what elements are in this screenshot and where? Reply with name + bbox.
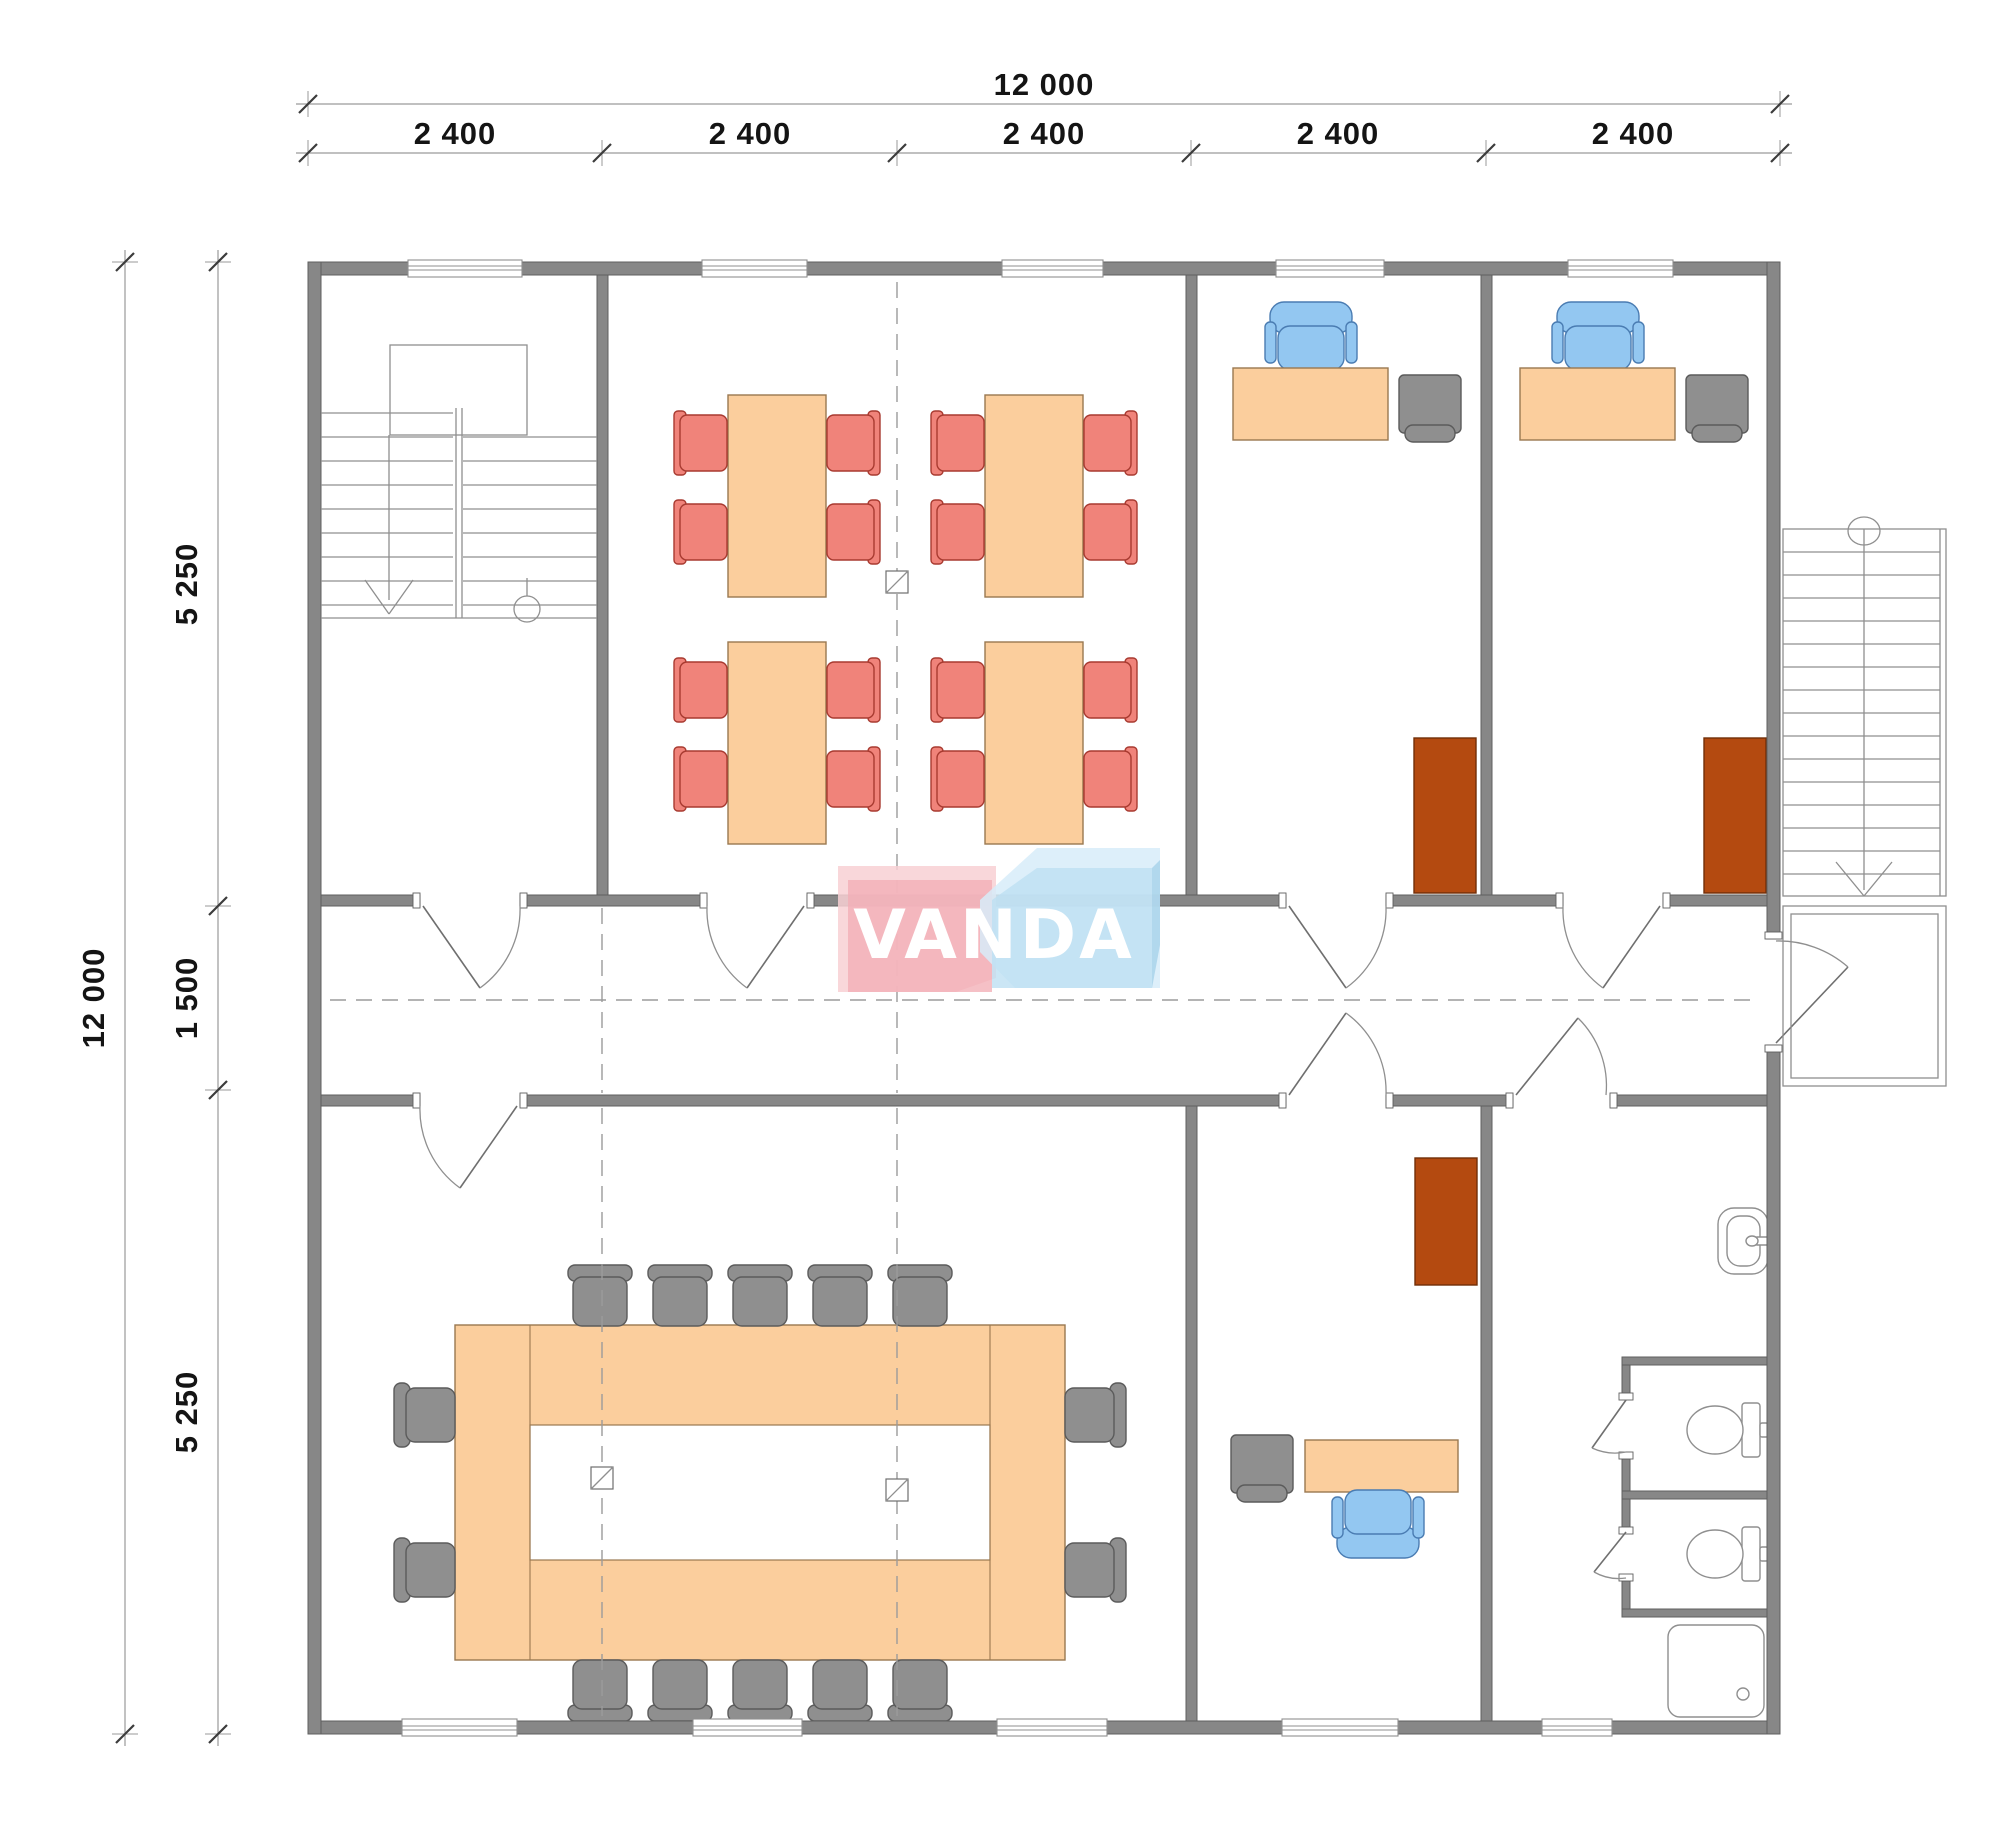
door-wc-stall-2 xyxy=(1594,1532,1626,1579)
cabinet xyxy=(1415,1158,1477,1285)
gray-chair-icon xyxy=(394,1383,455,1447)
conference-table-opening xyxy=(530,1425,990,1560)
desk xyxy=(1233,368,1388,440)
window-icon xyxy=(1276,260,1384,277)
toilet-icon xyxy=(1687,1403,1768,1457)
red-chair-icon xyxy=(674,747,727,811)
dimension-row: 5 250 xyxy=(169,543,204,626)
logo-text: VANDA xyxy=(853,896,1135,975)
wardrobe xyxy=(1414,738,1476,893)
toilet-icon xyxy=(1687,1527,1768,1581)
dimension-row: 5 250 xyxy=(169,1371,204,1454)
door-bathroom xyxy=(1516,1018,1606,1095)
bathroom-fixtures xyxy=(1668,1208,1772,1717)
entrance-porch xyxy=(1783,906,1946,1086)
gray-armchair-icon xyxy=(1686,375,1748,442)
gray-chair-icon xyxy=(648,1265,712,1326)
staircase-internal xyxy=(321,345,597,622)
door-exterior xyxy=(1776,941,1848,1043)
classroom-table xyxy=(728,642,826,844)
vanda-watermark: VANDA xyxy=(838,848,1160,992)
door-office-bottom xyxy=(1289,1013,1386,1095)
dimension-bay: 2 400 xyxy=(1592,116,1675,151)
red-chair-icon xyxy=(931,500,984,564)
wall-meeting-office xyxy=(1186,1095,1197,1721)
gray-chair-icon xyxy=(648,1660,712,1721)
gray-chair-icon xyxy=(568,1660,632,1721)
red-chair-icon xyxy=(1084,500,1137,564)
classroom-furniture xyxy=(674,395,1137,844)
door-classroom xyxy=(707,906,804,988)
gray-chair-icon xyxy=(728,1265,792,1326)
red-chair-icon xyxy=(827,747,880,811)
office-a-furniture xyxy=(1233,302,1476,893)
stair-landing xyxy=(390,345,527,435)
classroom-table xyxy=(985,395,1083,597)
gray-chair-icon xyxy=(394,1538,455,1602)
red-chair-icon xyxy=(931,658,984,722)
dimension-row: 1 500 xyxy=(169,957,204,1040)
meeting-room-furniture xyxy=(394,1265,1126,1721)
dimension-total-width: 12 000 xyxy=(994,67,1095,102)
gray-chair-icon xyxy=(728,1660,792,1721)
gray-chair-icon xyxy=(808,1265,872,1326)
dimension-left: 12 000 5 250 1 500 5 250 xyxy=(76,250,231,1746)
desk xyxy=(1305,1440,1458,1492)
staircase-external xyxy=(1783,517,1946,1086)
column-icon xyxy=(886,1479,908,1501)
dimension-top: 12 000 2 400 2 400 2 400 2 400 2 400 xyxy=(296,67,1792,166)
red-chair-icon xyxy=(674,500,727,564)
wall-office-bathroom xyxy=(1481,1095,1492,1721)
blue-task-chair-icon xyxy=(1265,302,1357,370)
door-stairwell xyxy=(423,906,520,988)
window-icon xyxy=(702,260,807,277)
red-chair-icon xyxy=(827,658,880,722)
dimension-bay: 2 400 xyxy=(709,116,792,151)
red-chair-icon xyxy=(931,747,984,811)
red-chair-icon xyxy=(827,500,880,564)
desk xyxy=(1520,368,1675,440)
floor-plan-drawing: 12 000 2 400 2 400 2 400 2 400 2 400 12 … xyxy=(0,0,2000,1848)
exterior-wall-left xyxy=(308,262,321,1734)
office-bottom-furniture xyxy=(1231,1158,1477,1558)
window-icon xyxy=(402,1719,517,1736)
exterior-wall-right xyxy=(1767,1045,1780,1734)
window-icon xyxy=(693,1719,802,1736)
classroom-table xyxy=(728,395,826,597)
blue-task-chair-icon xyxy=(1552,302,1644,370)
gray-armchair-icon xyxy=(1231,1435,1293,1502)
window-icon xyxy=(1002,260,1103,277)
window-icon xyxy=(408,260,522,277)
red-chair-icon xyxy=(931,411,984,475)
window-icon xyxy=(1568,260,1673,277)
window-icon xyxy=(997,1719,1107,1736)
gray-chair-icon xyxy=(1065,1538,1126,1602)
wall-classroom-office xyxy=(1186,275,1197,901)
wall-stairwell-classroom xyxy=(597,275,608,901)
door-office-b xyxy=(1563,906,1660,988)
floor-plan-page: 12 000 2 400 2 400 2 400 2 400 2 400 12 … xyxy=(0,0,2000,1848)
office-b-furniture xyxy=(1520,302,1766,893)
red-chair-icon xyxy=(1084,411,1137,475)
door-wc-stall-1 xyxy=(1592,1400,1626,1453)
window-icon xyxy=(1542,1719,1612,1736)
window-icon xyxy=(1282,1719,1398,1736)
dimension-bay: 2 400 xyxy=(1003,116,1086,151)
wardrobe xyxy=(1704,738,1766,893)
dimension-total-height: 12 000 xyxy=(76,948,111,1049)
shower-tray-icon xyxy=(1668,1625,1764,1717)
gray-chair-icon xyxy=(808,1660,872,1721)
gray-chair-icon xyxy=(1065,1383,1126,1447)
wall-office-office xyxy=(1481,275,1492,901)
column-icon xyxy=(886,571,908,593)
column-icon xyxy=(591,1467,613,1489)
red-chair-icon xyxy=(674,411,727,475)
sink-icon xyxy=(1718,1208,1772,1274)
gray-chair-icon xyxy=(568,1265,632,1326)
red-chair-icon xyxy=(1084,747,1137,811)
dimension-bay: 2 400 xyxy=(414,116,497,151)
dimension-bay: 2 400 xyxy=(1297,116,1380,151)
door-office-a xyxy=(1289,906,1386,988)
red-chair-icon xyxy=(674,658,727,722)
red-chair-icon xyxy=(1084,658,1137,722)
gray-armchair-icon xyxy=(1399,375,1461,442)
exterior-wall-right xyxy=(1767,262,1780,939)
blue-task-chair-icon xyxy=(1332,1490,1424,1558)
red-chair-icon xyxy=(827,411,880,475)
classroom-table xyxy=(985,642,1083,844)
door-meeting-room xyxy=(420,1106,517,1188)
